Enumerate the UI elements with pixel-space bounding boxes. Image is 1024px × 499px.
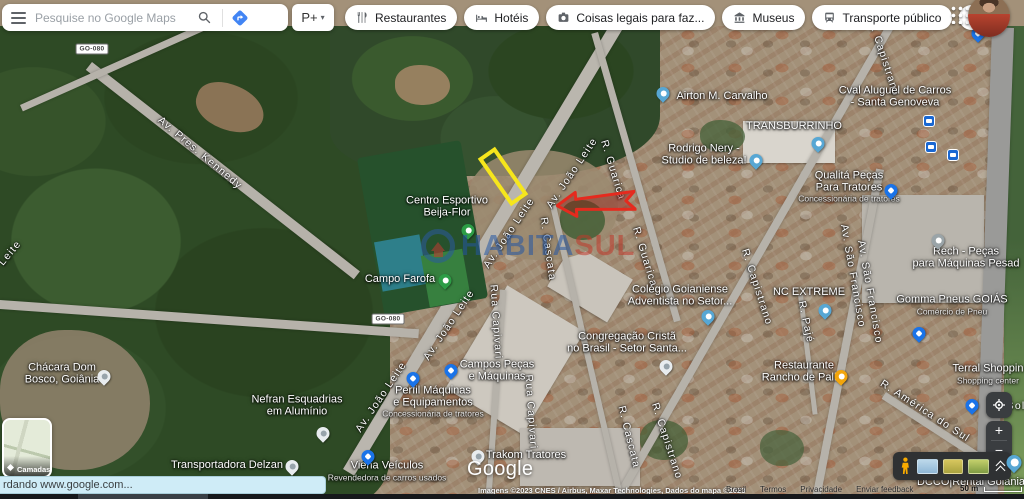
bus-stop-icon[interactable] (925, 141, 937, 153)
place-label-line: Qualitá Peças (798, 170, 900, 182)
place-label-line: Congregação Cristã (567, 331, 687, 343)
place-label-line: Nefran Esquadrias (251, 394, 342, 406)
search-icon[interactable] (197, 10, 212, 25)
place-label-line: Adventista no Setor... (628, 296, 733, 308)
place-label-line: em Alumínio (251, 406, 342, 418)
scale-bar (984, 487, 1022, 492)
place-label-line: Studio de beleza! (661, 155, 746, 167)
place-label-line: Terral Shoppin (953, 363, 1024, 375)
chip-label: Coisas legais para faz... (576, 11, 704, 25)
caret-down-icon: ▾ (321, 13, 325, 22)
imagery-thumbnail[interactable] (943, 459, 964, 474)
crosshair-icon (991, 397, 1007, 413)
chip-hot-is[interactable]: Hotéis (464, 5, 539, 30)
menu-icon[interactable] (11, 12, 26, 24)
trees (760, 430, 804, 466)
place-label[interactable]: Transportadora Delzan (171, 460, 283, 472)
chip-label: Hotéis (494, 11, 528, 25)
place-label[interactable]: Viena VeículosRevendedora de carros usad… (328, 460, 447, 481)
place-label-subtitle: Shopping center (953, 376, 1024, 385)
place-label-line: Perfil Máquinas (382, 385, 484, 397)
layers-button[interactable]: Camadas (2, 418, 52, 478)
place-label[interactable]: NC EXTREME (773, 287, 845, 299)
route-badge: GO-080 (76, 44, 109, 55)
place-label-line: Chácara Dom (25, 362, 100, 374)
red-arrow-annotation (555, 186, 637, 220)
imagery-thumbnail[interactable] (917, 459, 938, 474)
place-label-subtitle: Concessionária de tratores (382, 410, 484, 419)
chip-restaurantes[interactable]: Restaurantes (345, 5, 457, 30)
place-label-line: Restaurante (762, 360, 846, 372)
transit-icon (823, 11, 836, 24)
place-label-line: Rech - Peças (912, 246, 1019, 258)
camera-icon (557, 11, 570, 24)
place-label-line: e Equipamentos (382, 397, 484, 409)
attribution-link[interactable]: Termos (760, 485, 786, 494)
museum-icon (733, 11, 746, 24)
chip-label: Restaurantes (375, 11, 446, 25)
collapse-chevron-icon[interactable] (996, 462, 1005, 471)
street-view-bar (893, 452, 1011, 480)
google-maps-window: Av. Pres. KennedyAv. João LeiteAv. João … (0, 0, 1024, 499)
place-label[interactable]: Rech - Peçaspara Máquinas Pesad (912, 246, 1019, 269)
place-label[interactable]: Campos Peçase Máquinas (460, 359, 535, 382)
pt-label: P+ (301, 10, 317, 25)
chip-museus[interactable]: Museus (722, 5, 805, 30)
place-label-line: e Máquinas (460, 371, 535, 383)
directions-icon[interactable] (229, 7, 251, 29)
restaurant-icon (356, 11, 369, 24)
dirt-patch (395, 65, 450, 105)
place-label-line: Transportadora Delzan (171, 460, 283, 472)
category-chips: RestaurantesHotéisCoisas legais para faz… (345, 5, 984, 30)
chip-coisas-legais-para-faz[interactable]: Coisas legais para faz... (546, 5, 715, 30)
place-label-line: Viena Veículos (328, 460, 447, 472)
place-label[interactable]: Perfil Máquinase EquipamentosConcessioná… (382, 385, 484, 418)
place-label-line: Cval Aluguel de Carros (839, 85, 952, 97)
place-label-line: Centro Esportivo (406, 195, 488, 207)
place-label[interactable]: Nefran Esquadriasem Alumínio (251, 394, 342, 417)
browser-status-tooltip: rdando www.google.com... (0, 476, 326, 494)
search-bar: Pesquise no Google Maps (2, 4, 288, 31)
attribution-link[interactable]: Privacidade (800, 485, 842, 494)
google-logo: Google (467, 458, 533, 481)
place-label-line: para Máquinas Pesad (912, 258, 1019, 270)
pegman-icon[interactable] (899, 456, 912, 476)
google-apps-grid-icon[interactable] (949, 4, 969, 24)
place-label-line: - Santa Genoveva (839, 97, 952, 109)
pt-extension-button[interactable]: P+ ▾ (292, 4, 334, 31)
place-label-line: Beija-Flor (406, 207, 488, 219)
my-location-button[interactable] (986, 392, 1012, 418)
zoom-in-button[interactable]: + (986, 421, 1012, 440)
layers-icon (7, 465, 15, 473)
attribution-link[interactable]: Enviar feedback (856, 485, 913, 494)
hotel-icon (475, 11, 488, 24)
place-label-line: no Brasil - Setor Santa... (567, 343, 687, 355)
status-text: rdando www.google.com... (3, 479, 133, 491)
place-label-line: NC EXTREME (773, 287, 845, 299)
place-label-line: Gomma Pneus GOIÁS (896, 294, 1007, 306)
attribution-links: BrasilTermosPrivacidadeEnviar feedback (726, 485, 913, 494)
place-label-subtitle: Revendedora de carros usados (328, 473, 447, 482)
chip-label: Transporte público (842, 11, 941, 25)
bus-stop-icon[interactable] (947, 149, 959, 161)
place-label-line: Colégio Goianiense (628, 284, 733, 296)
place-label[interactable]: Congregação Cristãno Brasil - Setor Sant… (567, 331, 687, 354)
place-label[interactable]: Gomma Pneus GOIÁSComércio de Pneu (896, 294, 1007, 315)
place-label[interactable]: Terral ShoppinShopping center (953, 363, 1024, 384)
place-label[interactable]: Chácara DomBosco, Goiânia (25, 362, 100, 385)
place-label-line: Campo Farofa (365, 274, 435, 286)
car-rental-icon[interactable] (923, 115, 935, 127)
place-label[interactable]: Colégio GoianienseAdventista no Setor... (628, 284, 733, 307)
attribution-link[interactable]: Brasil (726, 485, 746, 494)
chip-transporte-p-blico[interactable]: Transporte público (812, 5, 952, 30)
place-label-line: TRANSBURRINHO (746, 121, 842, 133)
divider (222, 9, 223, 27)
place-label[interactable]: TRANSBURRINHO (746, 121, 842, 133)
place-label[interactable]: Cval Aluguel de Carros- Santa Genoveva (839, 85, 952, 108)
place-label[interactable]: Campo Farofa (365, 274, 435, 286)
imagery-thumbnail[interactable] (968, 459, 989, 474)
place-label[interactable]: Airton M. Carvalho (676, 91, 767, 103)
place-label-subtitle: Comércio de Pneu (896, 307, 1007, 316)
place-label-line: Airton M. Carvalho (676, 91, 767, 103)
place-label[interactable]: Centro EsportivoBeija-Flor (406, 195, 488, 218)
taskbar-edge (0, 494, 1024, 499)
place-label[interactable]: Rodrigo Nery -Studio de beleza! (661, 143, 746, 166)
place-label-subtitle: Concessionária de tratores (798, 195, 900, 204)
place-label[interactable]: RestauranteRancho de Palha (762, 360, 846, 383)
search-input[interactable]: Pesquise no Google Maps (35, 11, 195, 25)
place-label-line: Rodrigo Nery - (661, 143, 746, 155)
scale-label: 50 m (960, 484, 978, 493)
place-label-line: Campos Peças (460, 359, 535, 371)
chip-label: Museus (752, 11, 794, 25)
layers-label: Camadas (17, 465, 50, 474)
place-label-line: Bosco, Goiânia (25, 374, 100, 386)
route-badge: GO-080 (372, 314, 405, 325)
